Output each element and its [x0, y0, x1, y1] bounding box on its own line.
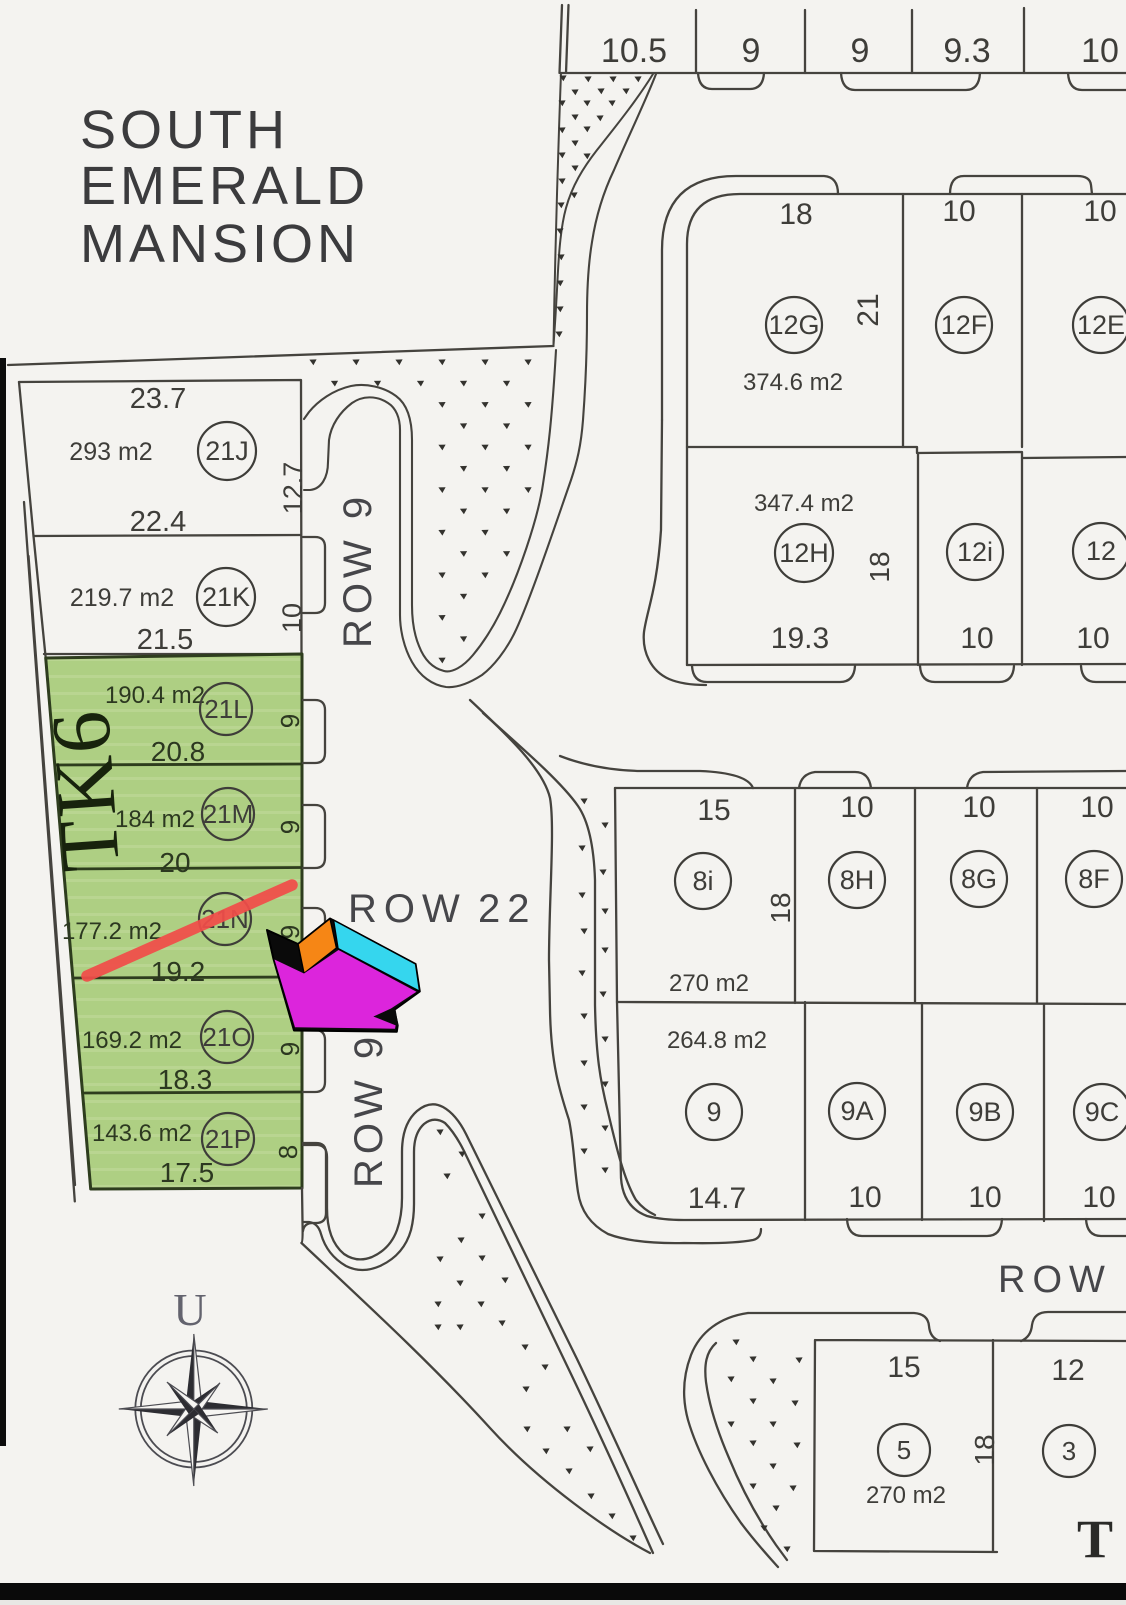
- svg-text:21O: 21O: [202, 1022, 251, 1052]
- svg-text:20: 20: [159, 847, 190, 878]
- svg-text:19.3: 19.3: [771, 622, 829, 655]
- svg-text:12G: 12G: [768, 310, 819, 340]
- svg-text:ROW: ROW: [998, 1259, 1112, 1301]
- svg-text:EMERALD: EMERALD: [80, 156, 369, 216]
- svg-text:15: 15: [697, 794, 730, 827]
- svg-text:21: 21: [852, 293, 885, 326]
- svg-text:18: 18: [864, 551, 895, 582]
- svg-text:10: 10: [1082, 1181, 1115, 1214]
- svg-text:ROW 9: ROW 9: [347, 1032, 391, 1188]
- svg-text:19.2: 19.2: [151, 956, 206, 987]
- svg-text:10.5: 10.5: [601, 32, 667, 70]
- svg-text:143.6 m2: 143.6 m2: [92, 1120, 192, 1147]
- svg-text:ROW 9: ROW 9: [336, 492, 380, 648]
- svg-text:18: 18: [765, 892, 796, 923]
- svg-text:21M: 21M: [203, 799, 254, 829]
- svg-text:14.7: 14.7: [688, 1182, 746, 1215]
- svg-text:8: 8: [273, 1145, 303, 1159]
- svg-text:22.4: 22.4: [130, 506, 186, 538]
- svg-text:15: 15: [887, 1351, 920, 1384]
- svg-text:10: 10: [1080, 791, 1113, 824]
- svg-text:10: 10: [960, 622, 993, 655]
- svg-text:9: 9: [275, 820, 305, 834]
- svg-text:12H: 12H: [779, 538, 829, 568]
- svg-text:10: 10: [968, 1181, 1001, 1214]
- svg-text:12i: 12i: [957, 537, 993, 567]
- svg-text:21K: 21K: [202, 582, 250, 612]
- svg-text:12F: 12F: [941, 310, 988, 340]
- svg-text:3: 3: [1062, 1436, 1076, 1466]
- svg-text:T: T: [1077, 1509, 1113, 1569]
- svg-text:177.2 m2: 177.2 m2: [62, 918, 162, 945]
- svg-text:23.7: 23.7: [130, 383, 186, 415]
- svg-text:8H: 8H: [840, 865, 875, 895]
- svg-text:190.4 m2: 190.4 m2: [105, 682, 205, 709]
- svg-text:12: 12: [1086, 536, 1116, 566]
- svg-text:374.6 m2: 374.6 m2: [743, 369, 843, 396]
- svg-text:21.5: 21.5: [137, 624, 193, 656]
- svg-text:12E: 12E: [1077, 310, 1125, 340]
- svg-text:12.7: 12.7: [278, 462, 308, 515]
- svg-text:9: 9: [275, 714, 305, 728]
- svg-text:SOUTH: SOUTH: [80, 100, 289, 160]
- svg-text:9.3: 9.3: [943, 32, 990, 70]
- svg-text:12: 12: [1051, 1354, 1084, 1387]
- svg-text:18: 18: [779, 198, 812, 231]
- svg-text:9: 9: [275, 1042, 305, 1056]
- svg-text:270 m2: 270 m2: [866, 1482, 946, 1509]
- svg-text:18: 18: [969, 1434, 1000, 1465]
- svg-text:219.7 m2: 219.7 m2: [70, 584, 174, 612]
- svg-text:293 m2: 293 m2: [69, 438, 152, 466]
- svg-text:9: 9: [742, 32, 761, 70]
- svg-text:18.3: 18.3: [158, 1064, 213, 1095]
- svg-text:9: 9: [706, 1097, 721, 1127]
- svg-text:ROW: ROW: [348, 887, 467, 931]
- svg-text:169.2 m2: 169.2 m2: [82, 1027, 182, 1054]
- svg-text:10: 10: [942, 195, 975, 228]
- svg-text:21P: 21P: [205, 1124, 251, 1154]
- svg-text:10: 10: [840, 791, 873, 824]
- svg-text:10: 10: [962, 791, 995, 824]
- svg-text:10: 10: [1081, 32, 1119, 70]
- svg-text:17.5: 17.5: [160, 1157, 215, 1188]
- svg-text:22: 22: [478, 887, 537, 931]
- svg-text:MANSION: MANSION: [80, 214, 360, 274]
- svg-text:21L: 21L: [204, 694, 247, 724]
- svg-text:264.8 m2: 264.8 m2: [667, 1027, 767, 1054]
- svg-text:10: 10: [277, 603, 307, 633]
- svg-text:8G: 8G: [961, 864, 997, 894]
- svg-text:9A: 9A: [840, 1096, 873, 1126]
- svg-text:8i: 8i: [692, 866, 713, 896]
- svg-text:9B: 9B: [968, 1097, 1001, 1127]
- svg-text:10: 10: [848, 1181, 881, 1214]
- svg-text:U: U: [173, 1284, 206, 1335]
- svg-text:8F: 8F: [1078, 864, 1110, 894]
- svg-text:5: 5: [897, 1435, 911, 1465]
- svg-text:9: 9: [851, 32, 870, 70]
- svg-text:10: 10: [1083, 195, 1116, 228]
- svg-text:347.4 m2: 347.4 m2: [754, 490, 854, 517]
- svg-text:20.8: 20.8: [151, 736, 206, 767]
- svg-text:21J: 21J: [205, 436, 249, 466]
- svg-text:10: 10: [1076, 622, 1109, 655]
- svg-text:9C: 9C: [1085, 1097, 1120, 1127]
- svg-text:270 m2: 270 m2: [669, 970, 749, 997]
